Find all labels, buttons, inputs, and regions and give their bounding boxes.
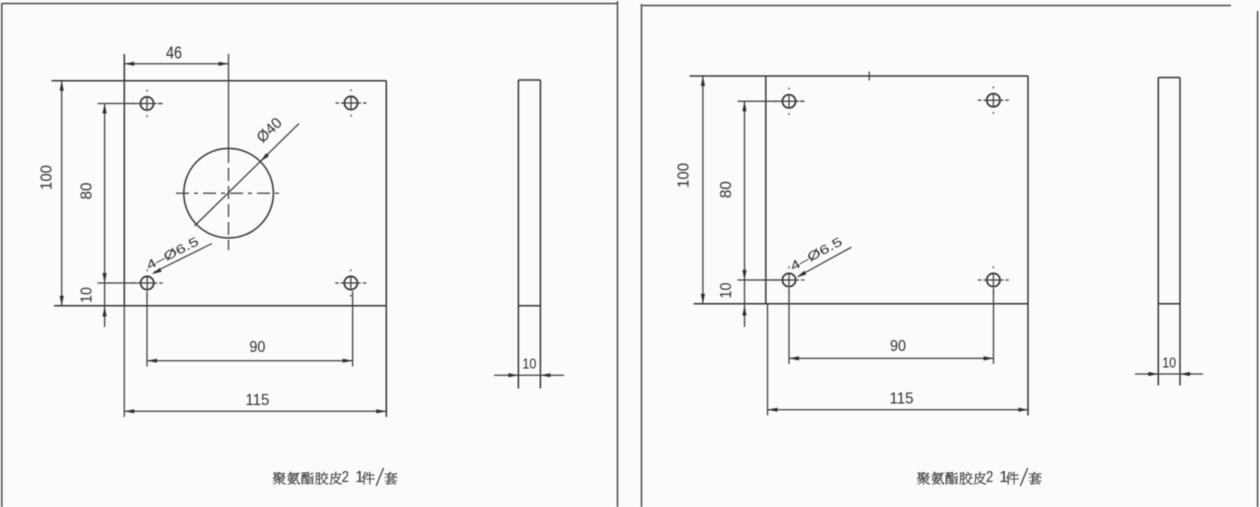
svg-text:2: 2 [342,469,349,486]
svg-text:80: 80 [79,182,96,199]
svg-text:80: 80 [718,181,735,198]
svg-text:4–Ø6.5: 4–Ø6.5 [788,235,845,274]
svg-text:115: 115 [890,391,914,408]
svg-text:115: 115 [245,392,269,409]
svg-text:46: 46 [166,43,182,63]
svg-text:10: 10 [718,282,735,298]
svg-text:2: 2 [986,469,993,486]
svg-text:10: 10 [1162,356,1176,372]
svg-text:100: 100 [676,163,693,188]
svg-text:100: 100 [39,165,56,190]
svg-text:10: 10 [79,287,96,303]
svg-text:90: 90 [890,338,906,355]
svg-text:90: 90 [249,339,265,356]
svg-text:10: 10 [522,357,536,373]
